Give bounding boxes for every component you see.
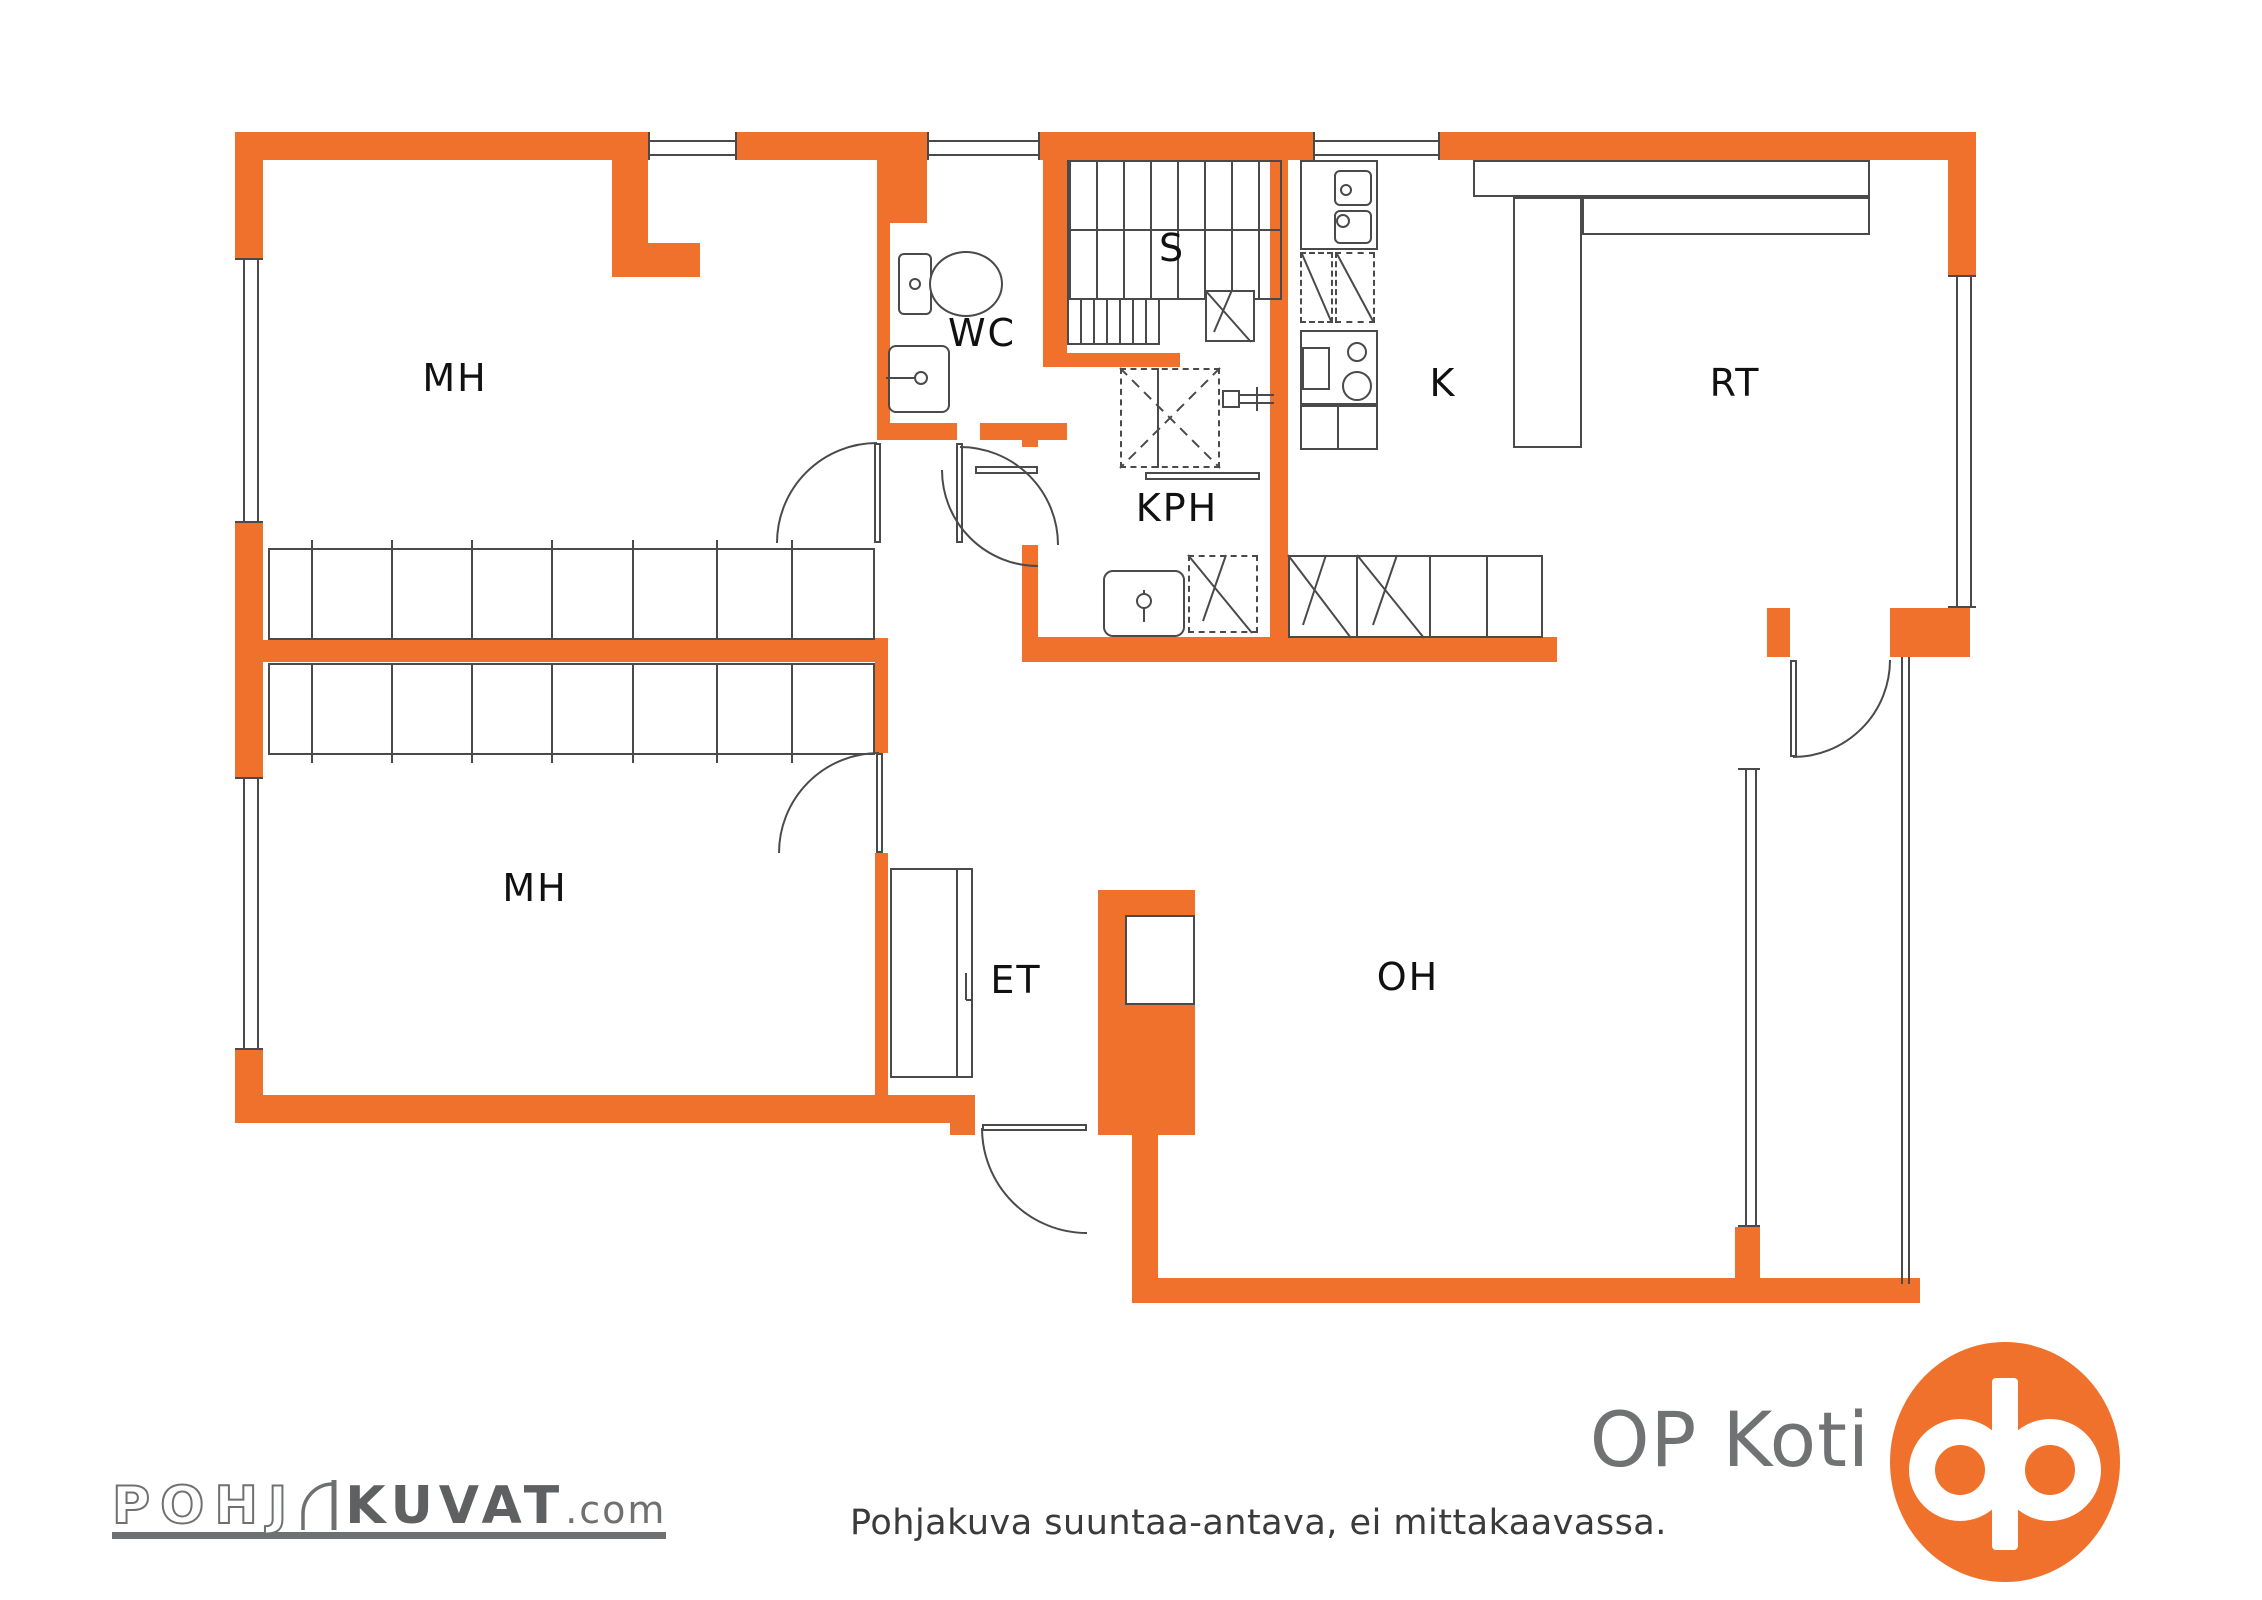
room-label-mh-upper: MH (422, 356, 487, 400)
window-right (1948, 275, 1976, 608)
wc-sink-symbol (888, 345, 950, 413)
room-label-rt: RT (1710, 361, 1761, 405)
stair-hatch-square (1205, 290, 1255, 342)
door-leaf-mh-et (876, 753, 883, 853)
room-label-k: K (1430, 361, 1457, 405)
wall-rt-balcony-a (1767, 608, 1790, 657)
fireplace-stub (1132, 1135, 1158, 1278)
window-left-lower (235, 777, 263, 1050)
pohjakuvat-part1: POHJ (112, 1480, 297, 1532)
door-leaf-kph (975, 466, 1038, 474)
wall-top-a (235, 132, 648, 160)
closet-lower-hooks (312, 755, 792, 763)
door-arc-entrance (982, 1128, 1087, 1233)
closet-upper-hooks (312, 540, 792, 548)
door-leaf-entrance (982, 1124, 1087, 1131)
op-logo-stem (1992, 1378, 2018, 1550)
kitchen-closet-row (1288, 555, 1543, 638)
op-logo (1888, 1340, 2122, 1584)
kitchen-appliance-1 (1300, 252, 1333, 323)
wall-bottom-mh-cap (950, 1095, 975, 1135)
room-label-mh-lower: MH (502, 866, 567, 910)
wall-bottom-oh (1132, 1278, 1920, 1303)
pohjakuvat-logo: POHJ KUVAT .com (112, 1478, 666, 1539)
door-glyph-icon (301, 1478, 341, 1532)
mixer-lines (1240, 387, 1274, 411)
pohjakuvat-part2: KUVAT (345, 1480, 565, 1532)
window-balcony (1738, 768, 1760, 1227)
fireplace-niche (1125, 915, 1195, 1005)
balcony-glazing (1901, 657, 1910, 1284)
toilet-bowl-symbol (929, 251, 1003, 317)
kitchen-sink-bowl-1 (1334, 170, 1372, 206)
floor-plan: MH WC S K RT KPH MH ET OH Pohjakuva suun… (0, 0, 2262, 1600)
wall-wc-bottom-a (877, 423, 957, 440)
door-leaf-balcony (1790, 660, 1797, 757)
op-koti-wordmark: OP Koti (1400, 1395, 1870, 1484)
wall-et-left-a (875, 638, 888, 753)
kitchen-counter-low (1300, 405, 1378, 450)
wall-left-a (235, 132, 263, 258)
wall-top-c (1040, 132, 1313, 160)
window-top-2 (927, 132, 1040, 160)
wall-et-left-b (875, 853, 888, 1095)
closet-row-upper (268, 548, 875, 640)
mixer-symbol (1222, 390, 1240, 408)
washer-reserve-symbol (1188, 555, 1258, 633)
wall-mh1-right-step (612, 243, 700, 277)
window-top-1 (648, 132, 737, 160)
door-leaf-hall-a (874, 443, 881, 543)
staircase-lower-flight (1067, 300, 1160, 345)
wall-balcony-stub (1735, 1227, 1760, 1282)
disclaimer-caption: Pohjakuva suuntaa-antava, ei mittakaavas… (850, 1503, 1667, 1543)
window-left-upper (235, 258, 263, 523)
room-label-kph: KPH (1136, 486, 1218, 530)
door-arc-balcony (1793, 660, 1890, 757)
stove-inner (1302, 347, 1330, 390)
wall-under-kitchen (1022, 637, 1557, 662)
window-top-3 (1313, 132, 1440, 160)
wall-central (235, 640, 887, 662)
wall-kph-left-a (1022, 423, 1038, 447)
room-label-et: ET (990, 958, 1041, 1002)
rt-counter-shelf (1582, 197, 1870, 235)
wall-rt-balcony-b (1890, 608, 1970, 657)
closet-row-lower (268, 663, 875, 755)
kitchen-appliance-2 (1335, 252, 1375, 323)
door-leaf-wc (956, 443, 963, 543)
shower-symbol (1120, 368, 1220, 468)
room-label-s: S (1159, 226, 1185, 270)
toilet-tank-symbol (898, 253, 932, 315)
room-label-oh: OH (1377, 955, 1439, 999)
wall-s-bottom (1043, 353, 1180, 367)
rt-counter-column (1513, 197, 1582, 448)
door-arc-hall-a (777, 443, 877, 543)
wall-wc-right (1043, 160, 1067, 367)
wall-right-top (1948, 132, 1976, 275)
room-label-wc: WC (948, 311, 1016, 355)
wall-top-d (1440, 132, 1976, 160)
pohjakuvat-suffix: .com (565, 1490, 666, 1532)
door-arc-mh-et (779, 753, 879, 853)
kitchen-sink-bowl-2 (1334, 210, 1372, 244)
door-arc-wc (960, 447, 1058, 545)
wall-wc-column (877, 132, 927, 223)
shower-screen (1145, 472, 1260, 480)
et-closet (890, 868, 973, 1078)
wall-top-b (737, 132, 877, 160)
rt-counter-band (1473, 160, 1870, 197)
wall-bottom-mh (235, 1095, 975, 1123)
kph-sink-symbol (1103, 570, 1185, 637)
